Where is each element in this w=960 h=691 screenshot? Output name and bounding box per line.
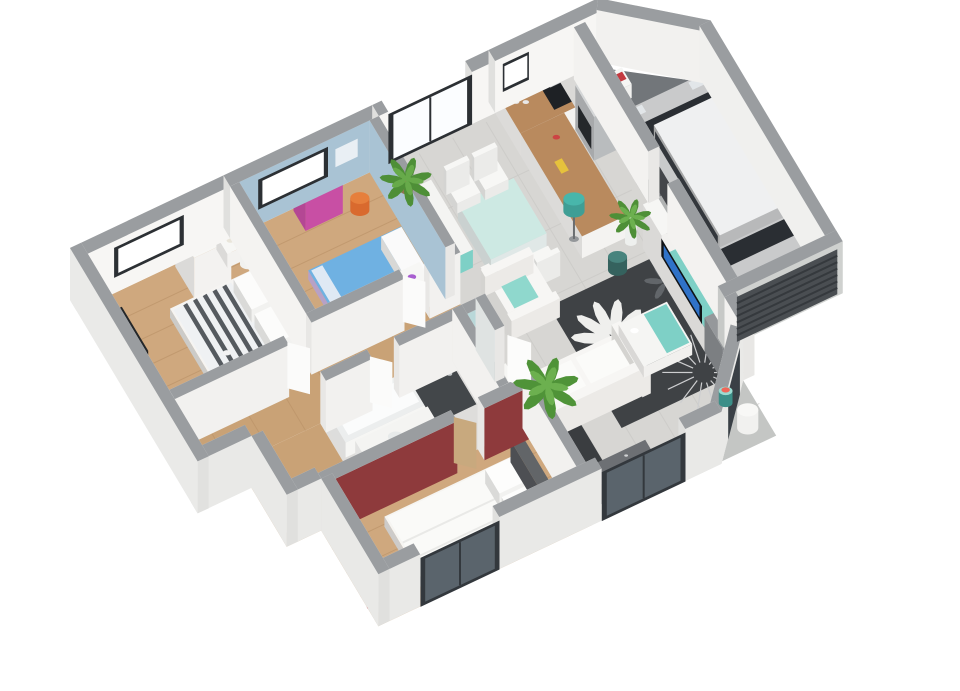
floor-lamp-teal [563,192,584,205]
wall-west-lower [378,569,389,626]
soccer-ball [223,350,231,355]
coffee-table-decor [630,328,638,333]
wall-bedroom3-north-red-b [478,397,485,460]
plant-desk-palm [541,381,552,388]
wall-wc-east-a [495,326,504,382]
wall-bedroom2-east-blue [445,243,454,299]
door-leaf-bedroom1 [287,342,310,394]
wall-bathroom-north-a [320,372,326,433]
wall-kitchen-garage-a [648,146,659,203]
door-leaf-bathroom [370,356,393,408]
floor-plan-page: 3D isometric floor plan render of a sing… [0,0,960,691]
wall-west-upper [198,456,209,513]
floor-plan-3d-render [0,0,960,691]
kitchen-stool [608,251,627,263]
bedroom2-chair [350,192,369,204]
entry-stool-white [737,403,758,416]
wall-bathroom-north-b [394,337,400,398]
plant-dining [402,176,411,182]
door-leaf-bedroom2 [403,276,426,328]
dining-chair-1-back [444,167,447,196]
dining-chair-2-back [472,153,475,182]
wall-garage-front [718,286,725,349]
dresser-handle-2 [624,454,628,456]
kitchen-red-item [553,135,560,140]
wall-top-kitchen [489,50,496,113]
plant-tv-unit [627,213,634,218]
door-leaf-bedroom3 [454,417,477,469]
kitchen-glass-2 [523,100,529,104]
wall-top-bedroom2-blue [224,175,231,238]
entry-candle-glow [721,387,729,392]
wall-step-b [287,490,298,547]
